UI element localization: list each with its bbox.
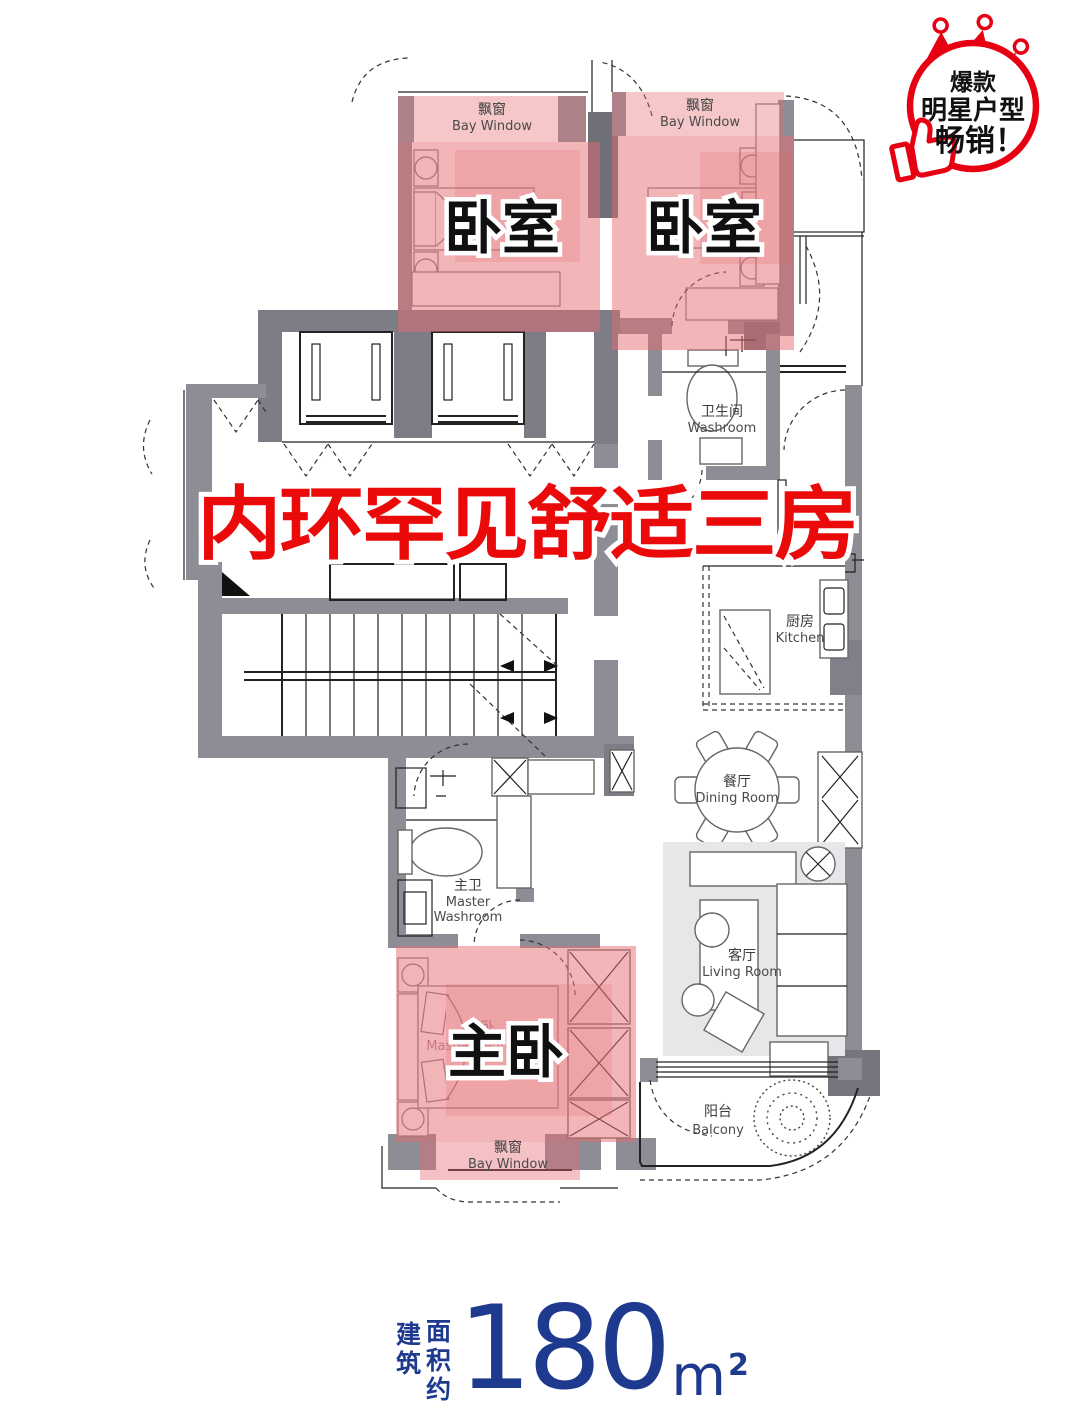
area-prefix-right: 面积约	[425, 1318, 452, 1404]
area-unit-sup: 2	[728, 1348, 749, 1383]
balcony-label-en: Balcony	[692, 1123, 744, 1138]
balcony-label-cn: 阳台	[704, 1104, 732, 1120]
floor-plan-drawing: 飘窗 Bay Window 飘窗 Bay Window 卧室 卧室 卫生间 Wa…	[0, 0, 1079, 1423]
living-room-label-en: Living Room	[702, 965, 782, 980]
bay-window-top-right-label-en: Bay Window	[660, 115, 740, 130]
balcony-fixtures	[640, 1062, 858, 1166]
area-prefix-left: 建筑	[395, 1321, 422, 1404]
kitchen-label-en: Kitchen	[776, 631, 825, 646]
badge-line3: 畅销！	[935, 124, 1025, 159]
area-prefix: 建筑 面积约	[395, 1318, 452, 1404]
badge-line1: 爆款	[950, 69, 997, 96]
elevator-2	[432, 332, 524, 424]
bay-window-top-left-label-en: Bay Window	[452, 119, 532, 134]
living-room-label-cn: 客厅	[728, 947, 756, 964]
master-bedroom-label: 主卧	[448, 1018, 564, 1086]
headline-text: 内环罕见舒适三房	[197, 478, 857, 571]
master-washroom-label-en1: Master	[446, 895, 491, 910]
dining-furniture	[675, 730, 862, 850]
washroom-label-en: Washroom	[688, 421, 757, 436]
master-washroom-label-cn: 主卫	[454, 878, 482, 894]
bedroom1-label: 卧室	[444, 194, 560, 262]
floor-plan-page: 飘窗 Bay Window 飘窗 Bay Window 卧室 卧室 卫生间 Wa…	[0, 0, 1079, 1423]
bay-window-top-right-label-cn: 飘窗	[686, 97, 714, 114]
staircase	[244, 614, 560, 756]
elevator-1	[300, 332, 392, 424]
bedroom2-label: 卧室	[646, 194, 762, 262]
bay-window-bottom-label-cn: 飘窗	[494, 1139, 522, 1156]
promo-badge: 爆款 明星户型 畅销！	[887, 3, 1036, 180]
area-figure: 建筑 面积约 180 m2	[395, 1296, 749, 1409]
area-unit: m2	[671, 1344, 748, 1409]
bay-window-bottom-label-en: Bay Window	[468, 1157, 548, 1172]
dining-room-label-cn: 餐厅	[723, 774, 751, 790]
washroom-label-cn: 卫生间	[701, 404, 743, 420]
master-washroom-fixtures	[396, 744, 634, 946]
area-value: 180	[458, 1296, 667, 1403]
bay-window-top-left-label-cn: 飘窗	[478, 101, 506, 118]
dining-room-label-en: Dining Room	[695, 791, 778, 806]
master-washroom-label-en2: Washroom	[434, 910, 503, 925]
badge-line2: 明星户型	[921, 95, 1025, 126]
kitchen-label-cn: 厨房	[786, 614, 814, 630]
